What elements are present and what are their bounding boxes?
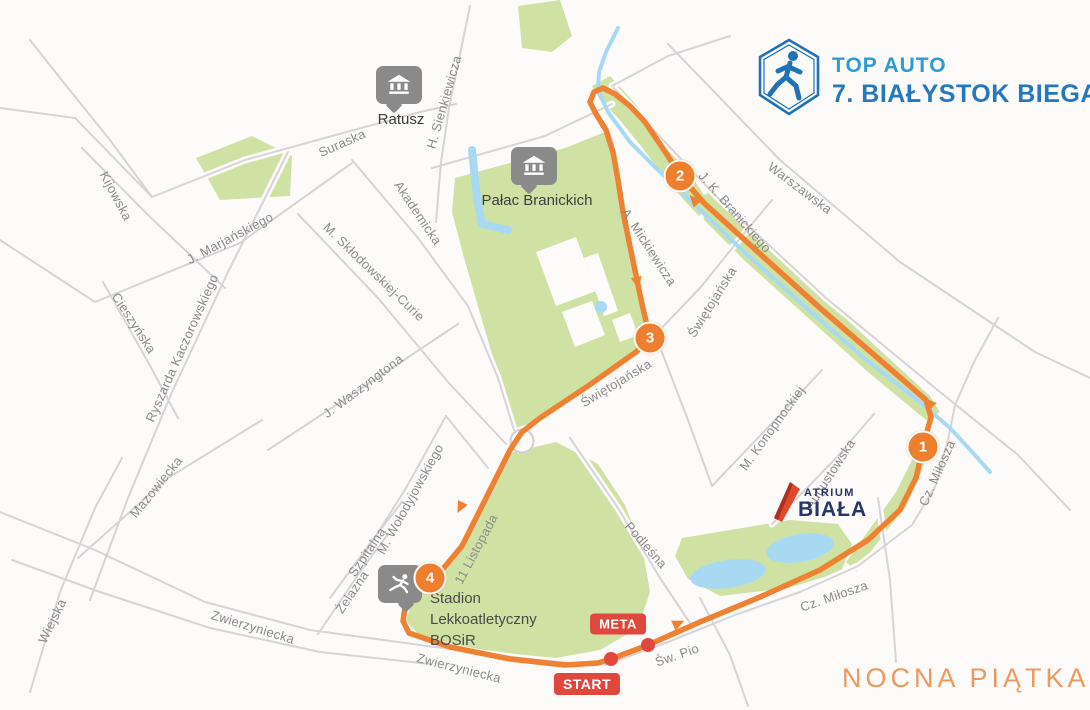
event-name: NOCNA PIĄTKA bbox=[842, 663, 1090, 694]
event-logo: TOP AUTO 7. BIAŁYSTOK BIEGA bbox=[756, 38, 822, 118]
checkpoint-4: 4 bbox=[414, 562, 447, 595]
palac-branickich-label: Pałac Branickich bbox=[482, 192, 593, 209]
stadium-label-line: Lekkoatletyczny bbox=[430, 609, 537, 630]
checkpoint-3: 3 bbox=[634, 322, 667, 355]
race-map: Kijowska Suraska H. Sienkiewicza Warszaw… bbox=[0, 0, 1090, 710]
town-hall-icon bbox=[386, 74, 412, 96]
meta-badge: META bbox=[590, 614, 646, 635]
ratusz-landmark-badge bbox=[376, 66, 422, 104]
runner-hexagon-icon bbox=[756, 38, 822, 118]
biala-label: BIAŁA bbox=[798, 498, 867, 522]
checkpoint-1: 1 bbox=[907, 431, 940, 464]
checkpoint-2: 2 bbox=[664, 160, 697, 193]
sponsor-name: TOP AUTO bbox=[832, 54, 1090, 78]
event-title: 7. BIAŁYSTOK BIEGA bbox=[832, 80, 1090, 109]
start-badge: START bbox=[554, 673, 620, 695]
runner-icon bbox=[387, 573, 413, 595]
event-logo-text: TOP AUTO 7. BIAŁYSTOK BIEGA bbox=[832, 54, 1090, 109]
stadium-label: Stadion Lekkoatletyczny BOSiR bbox=[430, 588, 537, 651]
palac-branickich-landmark-badge bbox=[511, 147, 557, 185]
green-areas-layer bbox=[196, 0, 940, 660]
meta-point-dot bbox=[641, 638, 655, 652]
stadium-label-line: BOSiR bbox=[430, 630, 537, 651]
atrium-biala-logo: ATRIUM BIAŁA bbox=[762, 474, 882, 528]
stadium-label-line: Stadion bbox=[430, 588, 537, 609]
start-point-dot bbox=[604, 652, 618, 666]
palace-icon bbox=[521, 155, 547, 177]
ratusz-label: Ratusz bbox=[378, 111, 425, 128]
